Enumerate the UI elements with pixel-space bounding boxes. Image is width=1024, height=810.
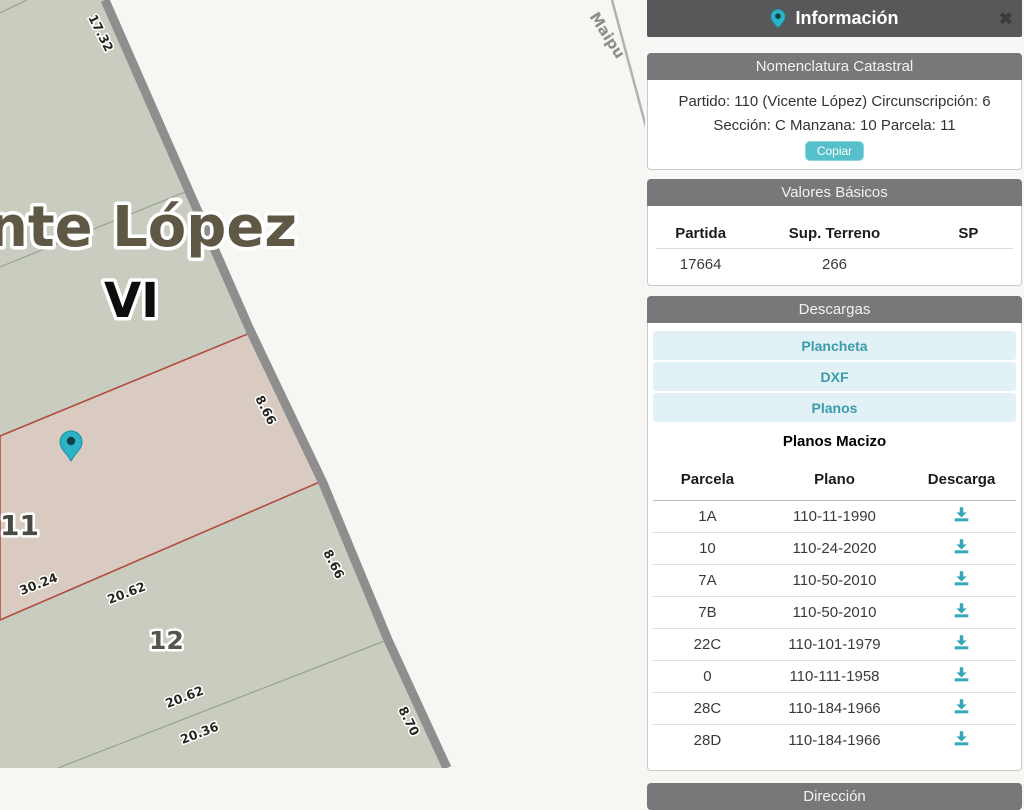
cell-plano: 110-24-2020: [762, 533, 907, 565]
cell-parcela: 22C: [653, 629, 762, 661]
table-row: 1A 110-11-1990: [653, 501, 1016, 533]
table-row: 7A 110-50-2010: [653, 565, 1016, 597]
cell-parcela: 10: [653, 533, 762, 565]
descargas-body: Plancheta DXF Planos Planos Macizo Parce…: [647, 323, 1022, 771]
info-panel: Información ✖ Nomenclatura Catastral Par…: [645, 0, 1024, 768]
cell-parcela: 7B: [653, 597, 762, 629]
download-icon[interactable]: [953, 699, 970, 714]
planos-table: Parcela Plano Descarga 1A 110-11-1990: [653, 458, 1016, 756]
cell-plano: 110-111-1958: [762, 661, 907, 693]
panel-titlebar: Información ✖: [647, 0, 1022, 37]
download-link-plancheta[interactable]: Plancheta: [653, 331, 1016, 360]
close-icon[interactable]: ✖: [999, 10, 1013, 27]
descargas-header: Descargas: [647, 296, 1022, 323]
table-row: 7B 110-50-2010: [653, 597, 1016, 629]
cell-plano: 110-50-2010: [762, 565, 907, 597]
panel-title: Información: [795, 8, 898, 29]
table-row: 10 110-24-2020: [653, 533, 1016, 565]
direccion-header: Dirección: [647, 783, 1022, 810]
download-link-planos[interactable]: Planos: [653, 393, 1016, 422]
table-row: 28C 110-184-1966: [653, 693, 1016, 725]
valores-col-sp: SP: [924, 218, 1013, 249]
cell-parcela: 28C: [653, 693, 762, 725]
download-link-dxf[interactable]: DXF: [653, 362, 1016, 391]
section-descargas: Descargas Plancheta DXF Planos Planos Ma…: [647, 296, 1022, 771]
cell-plano: 110-50-2010: [762, 597, 907, 629]
section-direccion: Dirección: [647, 783, 1022, 810]
section-nomenclatura: Nomenclatura Catastral Partido: 110 (Vic…: [647, 53, 1022, 170]
cell-parcela: 7A: [653, 565, 762, 597]
cell-parcela: 28D: [653, 725, 762, 757]
planos-col-parcela: Parcela: [653, 458, 762, 501]
planos-col-plano: Plano: [762, 458, 907, 501]
cell-plano: 110-101-1979: [762, 629, 907, 661]
planos-macizo-title: Planos Macizo: [653, 424, 1016, 458]
nomenclatura-header: Nomenclatura Catastral: [647, 53, 1022, 80]
table-row: 0 110-111-1958: [653, 661, 1016, 693]
valores-partida: 17664: [656, 249, 745, 280]
copy-button[interactable]: Copiar: [805, 141, 864, 161]
download-icon[interactable]: [953, 507, 970, 522]
download-icon[interactable]: [953, 731, 970, 746]
valores-header: Valores Básicos: [647, 179, 1022, 206]
parcel-11-label: 11: [0, 509, 39, 542]
nomenclatura-line1: Partido: 110 (Vicente López) Circunscrip…: [654, 90, 1015, 114]
section-label: VI: [104, 273, 159, 329]
valores-row: 17664 266: [656, 249, 1013, 280]
valores-sup-terreno: 266: [745, 249, 924, 280]
nomenclatura-body: Partido: 110 (Vicente López) Circunscrip…: [647, 80, 1022, 170]
planos-table-body: 1A 110-11-1990 10 110-24-2020 7A 110-50-…: [653, 501, 1016, 757]
valores-table: Partida Sup. Terreno SP 17664 266: [656, 218, 1013, 279]
map-pin-icon: [770, 8, 786, 29]
download-icon[interactable]: [953, 571, 970, 586]
valores-col-partida: Partida: [656, 218, 745, 249]
cell-parcela: 1A: [653, 501, 762, 533]
cell-parcela: 0: [653, 661, 762, 693]
table-row: 22C 110-101-1979: [653, 629, 1016, 661]
cell-plano: 110-184-1966: [762, 693, 907, 725]
valores-sp: [924, 249, 1013, 280]
section-valores: Valores Básicos Partida Sup. Terreno SP …: [647, 179, 1022, 286]
cell-plano: 110-11-1990: [762, 501, 907, 533]
download-icon[interactable]: [953, 603, 970, 618]
cell-plano: 110-184-1966: [762, 725, 907, 757]
download-icon[interactable]: [953, 635, 970, 650]
valores-body: Partida Sup. Terreno SP 17664 266: [647, 206, 1022, 286]
cadastral-map[interactable]: nte López VI 11 12 17.32 8.66 8.66 8.70 …: [0, 0, 660, 768]
parcel-12-label: 12: [149, 626, 184, 655]
valores-col-sup-terreno: Sup. Terreno: [745, 218, 924, 249]
district-label: nte López: [0, 195, 297, 260]
download-icon[interactable]: [953, 539, 970, 554]
nomenclatura-line2: Sección: C Manzana: 10 Parcela: 11: [654, 114, 1015, 138]
planos-col-descarga: Descarga: [907, 458, 1016, 501]
table-row: 28D 110-184-1966: [653, 725, 1016, 757]
download-icon[interactable]: [953, 667, 970, 682]
app-window: nte López VI 11 12 17.32 8.66 8.66 8.70 …: [0, 0, 1024, 768]
